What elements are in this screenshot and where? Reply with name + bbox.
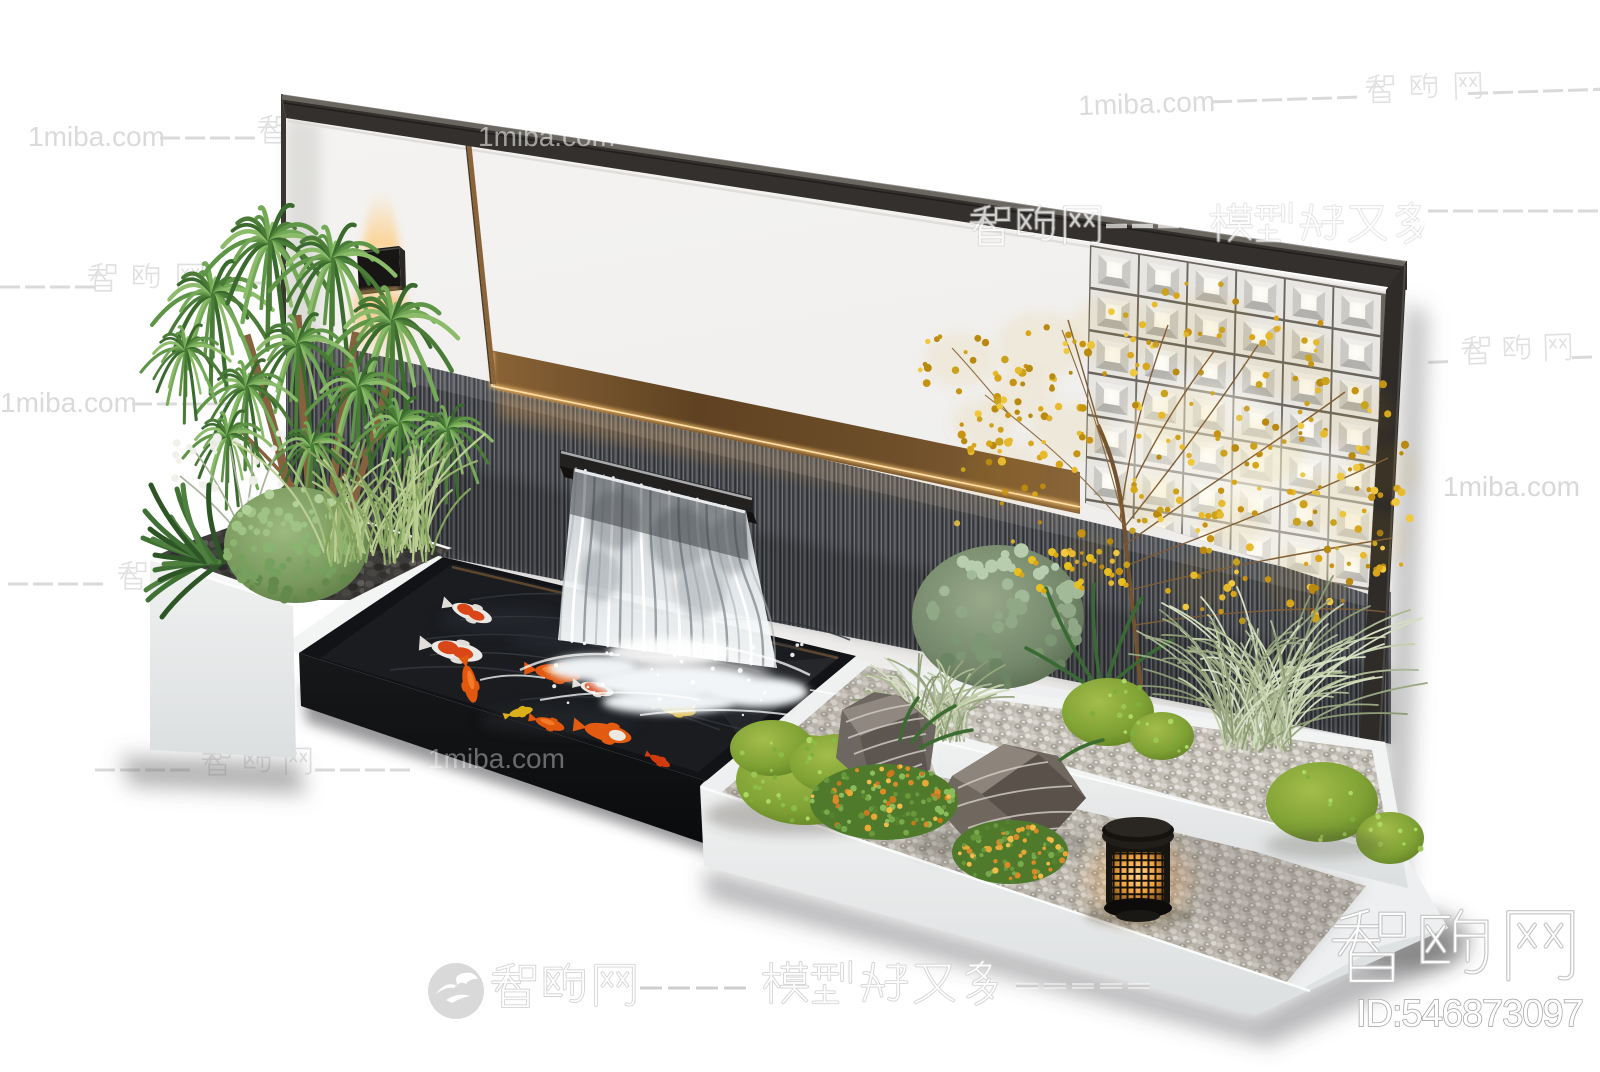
svg-text:1miba.com: 1miba.com	[1443, 471, 1580, 502]
svg-text:ID:546873097: ID:546873097	[1356, 993, 1583, 1035]
svg-text:1miba.com: 1miba.com	[28, 121, 165, 152]
svg-text:1miba.com: 1miba.com	[0, 387, 137, 418]
svg-text:1miba.com: 1miba.com	[478, 121, 615, 152]
svg-text:1miba.com: 1miba.com	[1078, 86, 1216, 121]
svg-text:1miba.com: 1miba.com	[428, 743, 565, 774]
